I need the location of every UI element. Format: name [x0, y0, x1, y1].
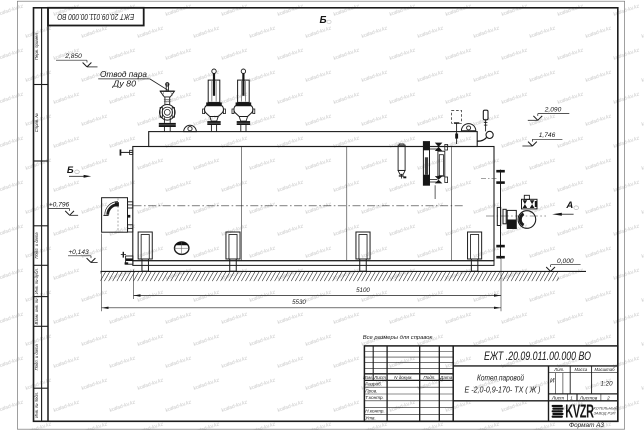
svg-text:kotlad-kv.kz: kotlad-kv.kz: [529, 421, 557, 430]
svg-text:kotlad-kv.kz: kotlad-kv.kz: [81, 201, 109, 216]
svg-text:Е -2,0-0,9-170- ТХ ( Ж ): Е -2,0-0,9-170- ТХ ( Ж ): [465, 385, 541, 394]
svg-text:kotlad-kv.kz: kotlad-kv.kz: [557, 91, 585, 106]
svg-text:kotlad-kv.kz: kotlad-kv.kz: [81, 157, 109, 172]
svg-text:Пров.: Пров.: [365, 388, 377, 393]
svg-text:Ду 80: Ду 80: [112, 79, 137, 88]
svg-text:kotlad-kv.kz: kotlad-kv.kz: [389, 223, 417, 238]
svg-text:kotlad-kv.kz: kotlad-kv.kz: [81, 289, 109, 304]
svg-text:kotlad-kv.kz: kotlad-kv.kz: [417, 157, 445, 172]
svg-text:Изм.: Изм.: [363, 375, 373, 380]
svg-text:kotlad-kv.kz: kotlad-kv.kz: [81, 333, 109, 348]
svg-text:kotlad-kv.kz: kotlad-kv.kz: [501, 91, 529, 106]
svg-text:kotlad-kv.kz: kotlad-kv.kz: [305, 333, 333, 348]
svg-text:kotlad-kv.kz: kotlad-kv.kz: [417, 289, 445, 304]
svg-text:kotlad-kv.kz: kotlad-kv.kz: [0, 223, 25, 238]
svg-text:kotlad-kv.kz: kotlad-kv.kz: [445, 47, 473, 62]
svg-text:Инв. № подл.: Инв. № подл.: [34, 392, 39, 418]
svg-text:kotlad-kv.kz: kotlad-kv.kz: [529, 289, 557, 304]
svg-text:kotlad-kv.kz: kotlad-kv.kz: [613, 47, 641, 62]
svg-text:kotlad-kv.kz: kotlad-kv.kz: [137, 25, 165, 40]
svg-text:kotlad-kv.kz: kotlad-kv.kz: [0, 47, 25, 62]
svg-text:kotlad-kv.kz: kotlad-kv.kz: [389, 91, 417, 106]
svg-text:kotlad-kv.kz: kotlad-kv.kz: [277, 3, 305, 18]
svg-text:kotlad-kv.kz: kotlad-kv.kz: [305, 113, 333, 128]
svg-text:kotlad-kv.kz: kotlad-kv.kz: [389, 179, 417, 194]
svg-text:kotlad-kv.kz: kotlad-kv.kz: [109, 399, 137, 414]
svg-text:kotlad-kv.kz: kotlad-kv.kz: [585, 113, 613, 128]
svg-text:kotlad-kv.kz: kotlad-kv.kz: [249, 421, 277, 430]
svg-text:Листов: Листов: [579, 395, 598, 401]
svg-text:Б: Б: [319, 15, 326, 26]
svg-text:kotlad-kv.kz: kotlad-kv.kz: [0, 91, 25, 106]
svg-text:kotlad-kv.kz: kotlad-kv.kz: [221, 399, 249, 414]
svg-text:kotlad-kv.kz: kotlad-kv.kz: [529, 245, 557, 260]
svg-text:kotlad-kv.kz: kotlad-kv.kz: [473, 25, 501, 40]
svg-text:kotlad-kv.kz: kotlad-kv.kz: [53, 91, 81, 106]
svg-text:kotlad-kv.kz: kotlad-kv.kz: [557, 3, 585, 18]
svg-text:kotlad-kv.kz: kotlad-kv.kz: [333, 399, 361, 414]
svg-text:kotlad-kv.kz: kotlad-kv.kz: [0, 355, 25, 370]
svg-text:Б: Б: [67, 165, 74, 176]
svg-text:Подп.: Подп.: [423, 375, 435, 380]
svg-text:kotlad-kv.kz: kotlad-kv.kz: [165, 135, 193, 150]
svg-text:kotlad-kv.kz: kotlad-kv.kz: [613, 355, 641, 370]
svg-text:kotlad-kv.kz: kotlad-kv.kz: [585, 289, 613, 304]
svg-text:Лист: Лист: [551, 395, 564, 401]
svg-text:Справ. №: Справ. №: [34, 113, 39, 132]
svg-text:kotlad-kv.kz: kotlad-kv.kz: [613, 135, 641, 150]
svg-text:kotlad-kv.kz: kotlad-kv.kz: [305, 421, 333, 430]
svg-text:kotlad-kv.kz: kotlad-kv.kz: [305, 245, 333, 260]
svg-text:kotlad-kv.kz: kotlad-kv.kz: [249, 289, 277, 304]
svg-text:kotlad-kv.kz: kotlad-kv.kz: [445, 223, 473, 238]
svg-text:kotlad-kv.kz: kotlad-kv.kz: [277, 135, 305, 150]
svg-text:kotlad-kv.kz: kotlad-kv.kz: [501, 311, 529, 326]
svg-text:А: А: [565, 200, 573, 211]
svg-text:kotlad-kv.kz: kotlad-kv.kz: [389, 3, 417, 18]
svg-text:kotlad-kv.kz: kotlad-kv.kz: [389, 47, 417, 62]
svg-text:kotlad-kv.kz: kotlad-kv.kz: [109, 91, 137, 106]
svg-text:kotlad-kv.kz: kotlad-kv.kz: [221, 311, 249, 326]
svg-text:kotlad-kv.kz: kotlad-kv.kz: [0, 179, 25, 194]
svg-text:kotlad-kv.kz: kotlad-kv.kz: [361, 157, 389, 172]
svg-text:kotlad-kv.kz: kotlad-kv.kz: [277, 91, 305, 106]
svg-text:kotlad-kv.kz: kotlad-kv.kz: [53, 355, 81, 370]
svg-text:kotlad-kv.kz: kotlad-kv.kz: [585, 69, 613, 84]
svg-text:kotlad-kv.kz: kotlad-kv.kz: [529, 157, 557, 172]
svg-text:5100: 5100: [356, 287, 370, 294]
svg-text:kotlad-kv.kz: kotlad-kv.kz: [473, 421, 501, 430]
svg-text:Масштаб: Масштаб: [594, 367, 615, 372]
svg-text:kotlad-kv.kz: kotlad-kv.kz: [249, 201, 277, 216]
svg-text:kotlad-kv.kz: kotlad-kv.kz: [361, 201, 389, 216]
svg-text:kotlad-kv.kz: kotlad-kv.kz: [249, 377, 277, 392]
svg-text:kotlad-kv.kz: kotlad-kv.kz: [0, 311, 25, 326]
svg-text:kotlad-kv.kz: kotlad-kv.kz: [193, 377, 221, 392]
svg-text:Н.контр.: Н.контр.: [365, 409, 384, 414]
svg-text:kotlad-kv.kz: kotlad-kv.kz: [361, 245, 389, 260]
svg-text:kotlad-kv.kz: kotlad-kv.kz: [585, 245, 613, 260]
svg-text:kotlad-kv.kz: kotlad-kv.kz: [417, 113, 445, 128]
svg-text:kotlad-kv.kz: kotlad-kv.kz: [249, 25, 277, 40]
svg-text:kotlad-kv.kz: kotlad-kv.kz: [137, 289, 165, 304]
svg-text:Подп. и дата: Подп. и дата: [34, 232, 39, 259]
svg-text:kotlad-kv.kz: kotlad-kv.kz: [473, 157, 501, 172]
svg-text:kotlad-kv.kz: kotlad-kv.kz: [389, 399, 417, 414]
svg-text:kotlad-kv.kz: kotlad-kv.kz: [473, 289, 501, 304]
svg-text:kotlad-kv.kz: kotlad-kv.kz: [613, 179, 641, 194]
svg-text:Лист: Лист: [373, 375, 386, 380]
svg-text:kotlad-kv.kz: kotlad-kv.kz: [193, 201, 221, 216]
svg-text:kotlad-kv.kz: kotlad-kv.kz: [0, 267, 25, 282]
svg-text:kotlad-kv.kz: kotlad-kv.kz: [557, 223, 585, 238]
svg-text:kotlad-kv.kz: kotlad-kv.kz: [389, 311, 417, 326]
svg-text:kotlad-kv.kz: kotlad-kv.kz: [501, 3, 529, 18]
svg-text:kotlad-kv.kz: kotlad-kv.kz: [249, 69, 277, 84]
svg-text:+0,143: +0,143: [68, 249, 89, 256]
svg-text:kotlad-kv.kz: kotlad-kv.kz: [81, 25, 109, 40]
svg-text:Формат А3: Формат А3: [569, 422, 604, 429]
svg-text:Взам. инв. №: Взам. инв. №: [34, 298, 39, 324]
svg-text:kotlad-kv.kz: kotlad-kv.kz: [417, 421, 445, 430]
svg-text:kotlad-kv.kz: kotlad-kv.kz: [221, 3, 249, 18]
svg-text:kotlad-kv.kz: kotlad-kv.kz: [277, 355, 305, 370]
svg-text:kotlad-kv.kz: kotlad-kv.kz: [445, 3, 473, 18]
svg-text:kotlad-kv.kz: kotlad-kv.kz: [585, 157, 613, 172]
svg-text:kotlad-kv.kz: kotlad-kv.kz: [529, 25, 557, 40]
svg-text:Подп. и дата: Подп. и дата: [34, 344, 39, 371]
svg-text:kotlad-kv.kz: kotlad-kv.kz: [417, 25, 445, 40]
svg-text:kotlad-kv.kz: kotlad-kv.kz: [361, 113, 389, 128]
svg-text:kotlad-kv.kz: kotlad-kv.kz: [445, 91, 473, 106]
svg-text:kotlad-kv.kz: kotlad-kv.kz: [361, 69, 389, 84]
svg-text:Инв. № дубл.: Инв. № дубл.: [34, 268, 39, 294]
svg-text:kotlad-kv.kz: kotlad-kv.kz: [0, 3, 25, 18]
svg-text:kotlad-kv.kz: kotlad-kv.kz: [333, 355, 361, 370]
svg-text:kotlad-kv.kz: kotlad-kv.kz: [445, 311, 473, 326]
svg-text:kotlad-kv.kz: kotlad-kv.kz: [165, 355, 193, 370]
svg-text:kotlad-kv.kz: kotlad-kv.kz: [473, 201, 501, 216]
svg-text:kotlad-kv.kz: kotlad-kv.kz: [613, 91, 641, 106]
svg-text:kotlad-kv.kz: kotlad-kv.kz: [193, 25, 221, 40]
svg-text:0,000: 0,000: [557, 258, 574, 265]
svg-text:Дата: Дата: [439, 375, 453, 380]
svg-text:kotlad-kv.kz: kotlad-kv.kz: [305, 25, 333, 40]
svg-text:kotlad-kv.kz: kotlad-kv.kz: [557, 267, 585, 282]
svg-text:kotlad-kv.kz: kotlad-kv.kz: [473, 69, 501, 84]
svg-text:kotlad-kv.kz: kotlad-kv.kz: [501, 135, 529, 150]
svg-text:kotlad-kv.kz: kotlad-kv.kz: [81, 421, 109, 430]
svg-text:ЕЖТ .20.09.011.00.000 ВО: ЕЖТ .20.09.011.00.000 ВО: [484, 351, 591, 363]
svg-text:kotlad-kv.kz: kotlad-kv.kz: [277, 311, 305, 326]
svg-text:2,090: 2,090: [544, 107, 562, 114]
svg-text:kotlad-kv.kz: kotlad-kv.kz: [137, 377, 165, 392]
svg-text:kotlad-kv.kz: kotlad-kv.kz: [81, 113, 109, 128]
svg-text:Утв.: Утв.: [365, 416, 375, 421]
svg-text:kotlad-kv.kz: kotlad-kv.kz: [333, 91, 361, 106]
svg-text:kotlad-kv.kz: kotlad-kv.kz: [165, 3, 193, 18]
svg-text:kotlad-kv.kz: kotlad-kv.kz: [417, 201, 445, 216]
svg-text:kotlad-kv.kz: kotlad-kv.kz: [165, 47, 193, 62]
svg-text:kotlad-kv.kz: kotlad-kv.kz: [389, 135, 417, 150]
svg-text:kotlad-kv.kz: kotlad-kv.kz: [109, 267, 137, 282]
svg-text:KVZR: KVZR: [565, 402, 594, 422]
svg-text:kotlad-kv.kz: kotlad-kv.kz: [53, 223, 81, 238]
svg-text:kotlad-kv.kz: kotlad-kv.kz: [557, 47, 585, 62]
svg-text:kotlad-kv.kz: kotlad-kv.kz: [333, 47, 361, 62]
svg-text:КОТЕЛЬНЫЙ: КОТЕЛЬНЫЙ: [594, 407, 618, 411]
svg-text:kotlad-kv.kz: kotlad-kv.kz: [249, 113, 277, 128]
svg-text:kotlad-kv.kz: kotlad-kv.kz: [0, 399, 25, 414]
svg-text:Все размеры для справок: Все размеры для справок: [363, 335, 433, 341]
svg-text:kotlad-kv.kz: kotlad-kv.kz: [109, 47, 137, 62]
svg-text:kotlad-kv.kz: kotlad-kv.kz: [165, 399, 193, 414]
svg-text:+0,796: +0,796: [49, 202, 70, 209]
svg-text:kotlad-kv.kz: kotlad-kv.kz: [305, 201, 333, 216]
svg-text:kotlad-kv.kz: kotlad-kv.kz: [193, 157, 221, 172]
svg-text:kotlad-kv.kz: kotlad-kv.kz: [193, 289, 221, 304]
svg-text:kotlad-kv.kz: kotlad-kv.kz: [277, 399, 305, 414]
svg-text:kotlad-kv.kz: kotlad-kv.kz: [137, 421, 165, 430]
svg-text:kotlad-kv.kz: kotlad-kv.kz: [445, 267, 473, 282]
svg-text:1,746: 1,746: [539, 132, 556, 139]
svg-text:2: 2: [606, 395, 610, 401]
svg-text:kotlad-kv.kz: kotlad-kv.kz: [361, 25, 389, 40]
svg-text:kotlad-kv.kz: kotlad-kv.kz: [53, 311, 81, 326]
svg-text:kotlad-kv.kz: kotlad-kv.kz: [305, 157, 333, 172]
svg-text:kotlad-kv.kz: kotlad-kv.kz: [193, 421, 221, 430]
svg-text:1:20: 1:20: [600, 380, 613, 387]
svg-text:1: 1: [570, 395, 573, 401]
svg-text:kotlad-kv.kz: kotlad-kv.kz: [249, 333, 277, 348]
svg-text:kotlad-kv.kz: kotlad-kv.kz: [417, 69, 445, 84]
svg-text:kotlad-kv.kz: kotlad-kv.kz: [613, 267, 641, 282]
svg-text:kotlad-kv.kz: kotlad-kv.kz: [221, 135, 249, 150]
svg-text:kotlad-kv.kz: kotlad-kv.kz: [137, 201, 165, 216]
svg-text:kotlad-kv.kz: kotlad-kv.kz: [613, 3, 641, 18]
svg-text:kotlad-kv.kz: kotlad-kv.kz: [0, 135, 25, 150]
svg-text:Масса: Масса: [575, 367, 588, 372]
svg-text:kotlad-kv.kz: kotlad-kv.kz: [333, 3, 361, 18]
svg-text:N докум.: N докум.: [394, 375, 413, 380]
svg-text:kotlad-kv.kz: kotlad-kv.kz: [557, 179, 585, 194]
svg-text:kotlad-kv.kz: kotlad-kv.kz: [613, 223, 641, 238]
svg-text:Перв. примен.: Перв. примен.: [34, 32, 39, 60]
svg-text:kotlad-kv.kz: kotlad-kv.kz: [445, 135, 473, 150]
svg-text:Котел паровой: Котел паровой: [477, 373, 524, 382]
svg-text:ЕЖТ 20.09.011.00.000 ВО: ЕЖТ 20.09.011.00.000 ВО: [57, 12, 134, 21]
svg-text:kotlad-kv.kz: kotlad-kv.kz: [165, 91, 193, 106]
svg-text:kotlad-kv.kz: kotlad-kv.kz: [53, 179, 81, 194]
svg-text:kotlad-kv.kz: kotlad-kv.kz: [137, 157, 165, 172]
svg-text:kotlad-kv.kz: kotlad-kv.kz: [361, 421, 389, 430]
svg-text:kotlad-kv.kz: kotlad-kv.kz: [221, 267, 249, 282]
svg-text:kotlad-kv.kz: kotlad-kv.kz: [277, 47, 305, 62]
svg-text:kotlad-kv.kz: kotlad-kv.kz: [193, 245, 221, 260]
svg-text:kotlad-kv.kz: kotlad-kv.kz: [81, 377, 109, 392]
svg-text:kotlad-kv.kz: kotlad-kv.kz: [109, 311, 137, 326]
svg-text:kotlad-kv.kz: kotlad-kv.kz: [221, 355, 249, 370]
svg-text:Т.контр.: Т.контр.: [365, 395, 384, 400]
svg-text:kotlad-kv.kz: kotlad-kv.kz: [165, 223, 193, 238]
svg-text:kotlad-kv.kz: kotlad-kv.kz: [221, 47, 249, 62]
svg-text:2,850: 2,850: [64, 53, 82, 60]
svg-text:kotlad-kv.kz: kotlad-kv.kz: [501, 179, 529, 194]
svg-text:kotlad-kv.kz: kotlad-kv.kz: [613, 311, 641, 326]
svg-text:Лит.: Лит.: [553, 367, 564, 372]
svg-text:kotlad-kv.kz: kotlad-kv.kz: [305, 69, 333, 84]
svg-text:kotlad-kv.kz: kotlad-kv.kz: [277, 179, 305, 194]
svg-text:kotlad-kv.kz: kotlad-kv.kz: [53, 267, 81, 282]
svg-text:kotlad-kv.kz: kotlad-kv.kz: [585, 25, 613, 40]
svg-text:Разраб.: Разраб.: [365, 382, 382, 387]
svg-text:kotlad-kv.kz: kotlad-kv.kz: [53, 399, 81, 414]
svg-text:kotlad-kv.kz: kotlad-kv.kz: [529, 69, 557, 84]
svg-text:kotlad-kv.kz: kotlad-kv.kz: [249, 245, 277, 260]
svg-text:5530: 5530: [292, 299, 306, 306]
svg-text:kotlad-kv.kz: kotlad-kv.kz: [193, 333, 221, 348]
svg-text:kotlad-kv.kz: kotlad-kv.kz: [557, 311, 585, 326]
svg-text:kotlad-kv.kz: kotlad-kv.kz: [53, 135, 81, 150]
svg-text:И: И: [550, 378, 555, 385]
svg-text:kotlad-kv.kz: kotlad-kv.kz: [501, 47, 529, 62]
svg-text:kotlad-kv.kz: kotlad-kv.kz: [137, 333, 165, 348]
svg-text:kotlad-kv.kz: kotlad-kv.kz: [165, 179, 193, 194]
svg-text:kotlad-kv.kz: kotlad-kv.kz: [25, 421, 53, 430]
svg-text:kotlad-kv.kz: kotlad-kv.kz: [109, 355, 137, 370]
svg-text:kotlad-kv.kz: kotlad-kv.kz: [277, 223, 305, 238]
svg-text:kotlad-kv.kz: kotlad-kv.kz: [585, 201, 613, 216]
svg-text:kotlad-kv.kz: kotlad-kv.kz: [221, 179, 249, 194]
svg-text:kotlad-kv.kz: kotlad-kv.kz: [165, 311, 193, 326]
svg-text:kotlad-kv.kz: kotlad-kv.kz: [221, 223, 249, 238]
svg-text:kotlad-kv.kz: kotlad-kv.kz: [333, 311, 361, 326]
svg-text:kotlad-kv.kz: kotlad-kv.kz: [305, 377, 333, 392]
svg-text:kotlad-kv.kz: kotlad-kv.kz: [305, 289, 333, 304]
svg-text:kotlad-kv.kz: kotlad-kv.kz: [445, 179, 473, 194]
svg-text:ЗАВОД РЭП: ЗАВОД РЭП: [594, 412, 616, 416]
svg-text:Отвод пара: Отвод пара: [100, 70, 148, 79]
svg-text:kotlad-kv.kz: kotlad-kv.kz: [417, 245, 445, 260]
svg-text:kotlad-kv.kz: kotlad-kv.kz: [473, 113, 501, 128]
svg-text:kotlad-kv.kz: kotlad-kv.kz: [557, 135, 585, 150]
svg-text:kotlad-kv.kz: kotlad-kv.kz: [249, 157, 277, 172]
svg-text:kotlad-kv.kz: kotlad-kv.kz: [333, 267, 361, 282]
